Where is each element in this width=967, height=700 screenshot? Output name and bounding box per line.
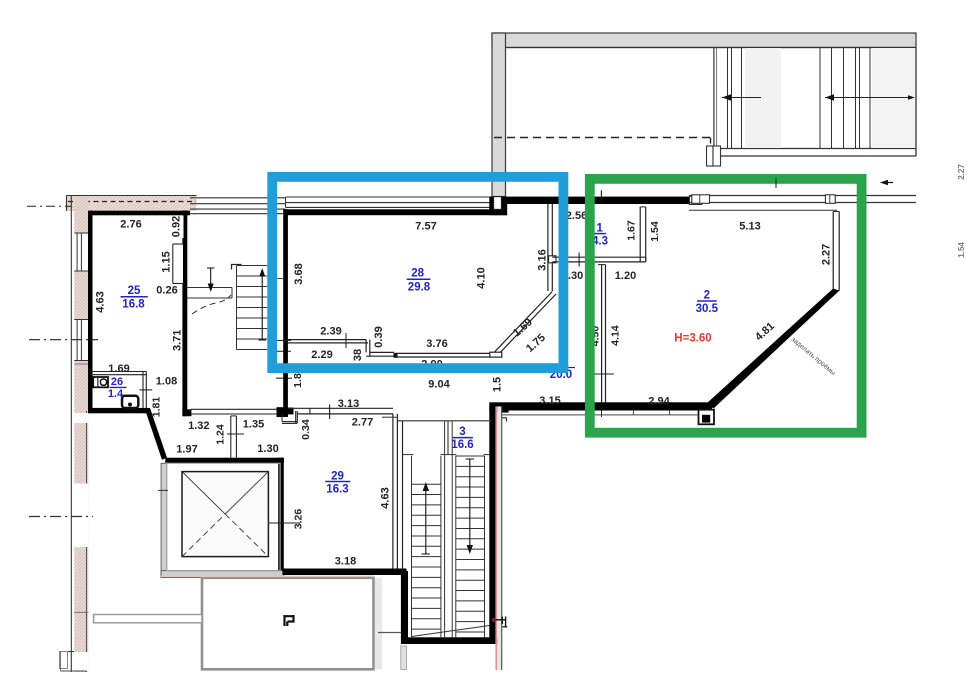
svg-text:5.13: 5.13	[739, 221, 760, 233]
svg-text:2.77: 2.77	[352, 417, 373, 429]
svg-text:0.34: 0.34	[300, 419, 312, 440]
svg-text:1.8: 1.8	[292, 373, 304, 388]
svg-text:9.04: 9.04	[428, 379, 450, 391]
svg-text:4.63: 4.63	[380, 487, 392, 508]
svg-text:1.69: 1.69	[108, 363, 129, 375]
svg-text:38: 38	[352, 349, 364, 361]
svg-text:1.32: 1.32	[188, 420, 209, 432]
svg-text:3.71: 3.71	[172, 330, 184, 351]
svg-text:3.68: 3.68	[293, 263, 305, 284]
svg-text:3.18: 3.18	[335, 556, 356, 568]
svg-text:H=3.60: H=3.60	[674, 333, 711, 345]
svg-text:29: 29	[331, 471, 344, 483]
svg-text:3.16: 3.16	[537, 249, 549, 270]
svg-text:25: 25	[128, 285, 141, 297]
svg-text:0.92: 0.92	[171, 216, 183, 237]
svg-text:1: 1	[596, 222, 603, 234]
svg-text:28: 28	[411, 268, 424, 280]
svg-text:1.4: 1.4	[108, 388, 124, 400]
svg-text:16.6: 16.6	[451, 439, 473, 451]
svg-text:4.81: 4.81	[753, 320, 777, 343]
svg-text:2.94: 2.94	[648, 396, 670, 408]
svg-text:1.5: 1.5	[492, 377, 504, 392]
svg-text:1.67: 1.67	[626, 220, 638, 241]
svg-text:2.29: 2.29	[311, 349, 332, 361]
svg-text:26: 26	[111, 376, 123, 388]
svg-text:1.81: 1.81	[151, 397, 163, 418]
svg-text:2.27: 2.27	[957, 164, 966, 180]
svg-text:2.56: 2.56	[566, 210, 587, 222]
svg-text:0.39: 0.39	[373, 326, 385, 347]
svg-text:3.26: 3.26	[293, 509, 305, 530]
svg-text:1.35: 1.35	[243, 419, 264, 431]
svg-text:0.26: 0.26	[156, 285, 177, 297]
svg-text:3: 3	[459, 426, 465, 438]
svg-text:1.15: 1.15	[161, 251, 173, 272]
svg-text:1.75: 1.75	[524, 332, 548, 355]
svg-text:1.97: 1.97	[176, 444, 197, 456]
svg-text:2: 2	[704, 290, 710, 302]
svg-text:29.8: 29.8	[408, 281, 431, 293]
svg-text:2.39: 2.39	[320, 326, 341, 338]
svg-text:4.10: 4.10	[476, 267, 488, 288]
svg-text:7.57: 7.57	[415, 221, 436, 233]
svg-text:1.08: 1.08	[156, 376, 177, 388]
svg-text:16.3: 16.3	[326, 483, 348, 495]
svg-text:2.27: 2.27	[821, 244, 833, 265]
svg-text:30.5: 30.5	[696, 303, 719, 315]
svg-text:1.30: 1.30	[257, 443, 278, 455]
svg-text:1.54: 1.54	[649, 221, 661, 242]
svg-text:3.15: 3.15	[539, 395, 560, 407]
svg-text:2.76: 2.76	[120, 219, 141, 231]
svg-text:1.20: 1.20	[615, 270, 636, 282]
svg-text:16.8: 16.8	[122, 298, 145, 310]
svg-text:заделать проёмы: заделать проёмы	[790, 336, 837, 377]
svg-text:3.13: 3.13	[338, 398, 359, 410]
svg-text:4.14: 4.14	[610, 325, 622, 346]
svg-text:3.76: 3.76	[426, 338, 447, 350]
svg-text:1.24: 1.24	[215, 424, 227, 445]
svg-text:1.54: 1.54	[957, 242, 966, 258]
svg-text:4.63: 4.63	[95, 291, 107, 312]
